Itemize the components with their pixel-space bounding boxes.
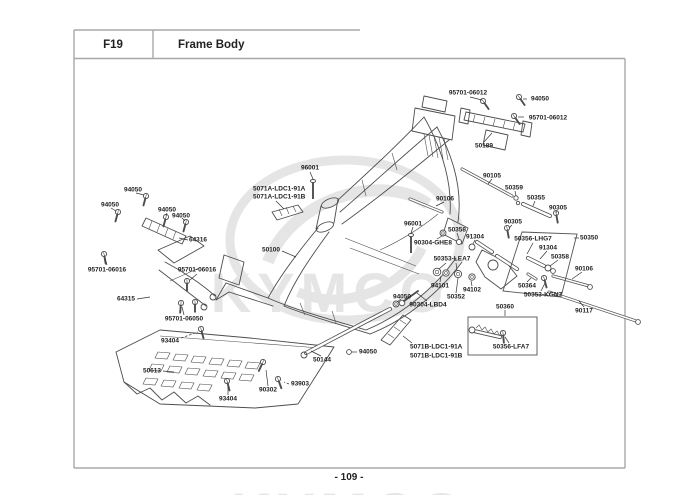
- sleeve-50355: [523, 204, 550, 216]
- part-label: 50360: [496, 304, 514, 311]
- part-label: 5071A-LDC1-91A: [253, 186, 306, 193]
- part-label: 95701-06050: [165, 316, 204, 323]
- part-label: 93903: [291, 381, 309, 388]
- part-label: 95701-06012: [529, 115, 568, 122]
- part-label: 94101: [431, 283, 449, 290]
- part-label: 50353-LEA7: [434, 256, 471, 263]
- part-label: 50189: [475, 143, 493, 150]
- part-label: 90304-GHE8: [414, 240, 452, 247]
- part-label: 64315: [117, 296, 135, 303]
- part-label: 90305: [549, 205, 567, 212]
- parts-diagram: KYMCO KYMCO F19 Frame Body: [0, 0, 700, 495]
- part-label: 5071A-LDC1-91B: [253, 194, 306, 201]
- part-label: 93404: [161, 338, 179, 345]
- part-label: 5071B-LDC1-91A: [410, 344, 463, 351]
- part-label: 50613: [143, 368, 161, 375]
- part-label: 95701-06012: [449, 90, 488, 97]
- part-label: 91304: [539, 245, 557, 252]
- part-label: 90304-LBD4: [409, 302, 447, 309]
- part-label: 50358: [551, 254, 569, 261]
- part-label: 50364: [518, 283, 536, 290]
- part-label: 90106: [575, 266, 593, 273]
- part-labels: 95701-060129405095701-060125018996001507…: [88, 90, 599, 403]
- rod-90106-lower: [553, 276, 592, 289]
- part-label: 94050: [531, 96, 549, 103]
- catalog-page: KYMCO KYMCO F19 Frame Body: [0, 0, 700, 495]
- part-label: 91304: [466, 234, 484, 241]
- part-label: 50358: [448, 227, 466, 234]
- bracket-50189-drawing: [459, 108, 532, 150]
- part-label: 96001: [301, 165, 319, 172]
- watermark-bottom-row: KYMCO: [231, 481, 469, 495]
- part-label: 50144: [313, 357, 331, 364]
- part-label: 90302: [259, 387, 277, 394]
- part-label: 94050: [393, 294, 411, 301]
- part-label: 95701-06016: [178, 267, 217, 274]
- part-label: 64316: [189, 237, 207, 244]
- kymco-watermark: KYMCO KYMCO: [211, 160, 469, 495]
- part-label: 93404: [219, 396, 237, 403]
- watermark-text: KYMCO: [211, 261, 449, 324]
- part-label: 50100: [262, 247, 280, 254]
- page-title: Frame Body: [178, 39, 245, 51]
- part-label: 94102: [463, 287, 481, 294]
- part-label: 50356-LFA7: [493, 344, 530, 351]
- part-label: 50352: [447, 294, 465, 301]
- part-label: 50356-LHG7: [514, 236, 552, 243]
- part-label: 50350: [580, 235, 598, 242]
- page-code: F19: [103, 39, 123, 51]
- part-label: 50355: [527, 195, 545, 202]
- part-label: 96001: [404, 221, 422, 228]
- part-label: 50353-KGN7: [524, 292, 563, 299]
- part-label: 90105: [483, 173, 501, 180]
- part-label: 94050: [359, 349, 377, 356]
- part-label: 94050: [124, 187, 142, 194]
- part-label: 94050: [172, 213, 190, 220]
- part-label: 90117: [575, 308, 593, 315]
- page-number: - 109 -: [335, 472, 364, 483]
- header: F19 Frame Body: [103, 39, 245, 51]
- part-label: 94050: [101, 202, 119, 209]
- part-label: 5071B-LDC1-91B: [410, 353, 463, 360]
- part-label: 90106: [436, 196, 454, 203]
- rod-90117: [549, 292, 640, 324]
- part-label: 90305: [504, 219, 522, 226]
- part-label: 50359: [505, 185, 523, 192]
- part-label: 95701-06016: [88, 267, 127, 274]
